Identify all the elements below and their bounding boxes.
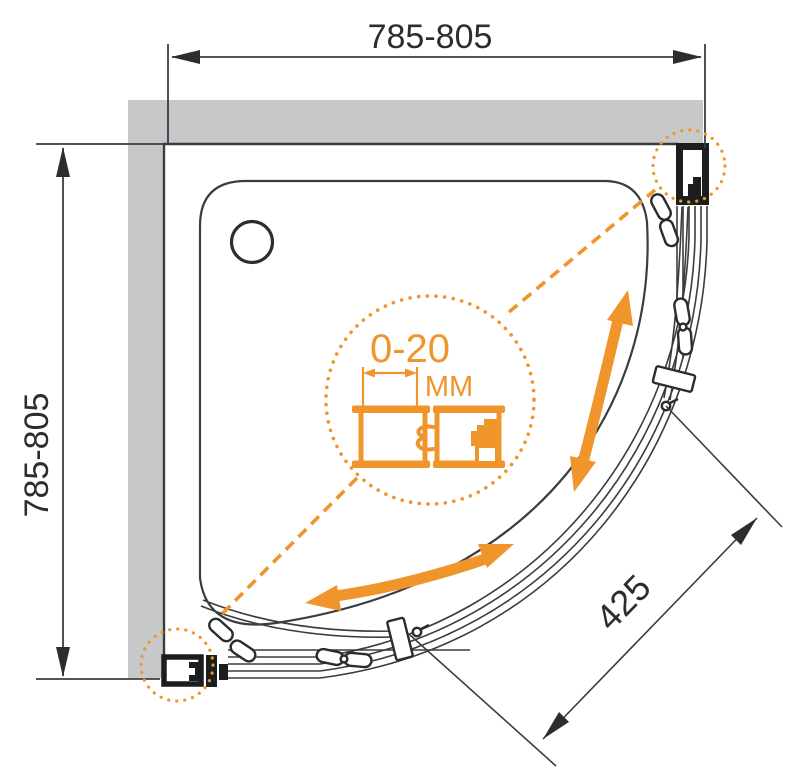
roller-axle bbox=[341, 656, 348, 663]
profile-flange bbox=[352, 406, 430, 414]
profile-bar bbox=[702, 143, 709, 205]
handle-bottom-door bbox=[387, 618, 413, 661]
shower-enclosure-technical-drawing: 785-805 785-805 425 0-20 MM bbox=[0, 0, 800, 783]
roller-pair-bottom bbox=[315, 648, 372, 668]
leader-line-top bbox=[666, 406, 782, 527]
roller-axle bbox=[680, 324, 687, 331]
arrow-down-icon bbox=[56, 647, 70, 677]
roller bbox=[673, 298, 690, 327]
entry-dimension-label: 425 bbox=[587, 566, 658, 638]
wall-profile-bottom-left bbox=[164, 655, 228, 687]
dimension-line bbox=[543, 518, 757, 739]
door-stopper-bottom bbox=[413, 628, 421, 636]
roller bbox=[228, 638, 258, 664]
adjustment-range-label: 0-20 bbox=[370, 327, 450, 371]
arrow-right-icon bbox=[673, 50, 702, 64]
shower-tray bbox=[200, 181, 648, 625]
arrow-left-icon bbox=[171, 50, 200, 64]
roller-pair-right bbox=[673, 298, 692, 355]
profile-bar bbox=[676, 143, 683, 205]
profile-bar bbox=[206, 655, 217, 687]
arrow-up-icon bbox=[56, 147, 70, 177]
arrow-head-down-icon bbox=[570, 456, 596, 492]
depth-dimension-label: 785-805 bbox=[18, 393, 56, 518]
top-wall bbox=[128, 100, 703, 143]
wall-profile-top-right bbox=[676, 143, 709, 205]
profile-clip bbox=[688, 177, 701, 196]
roller bbox=[649, 192, 673, 222]
roller bbox=[678, 327, 693, 355]
plan-view-diagram: 785-805 785-805 425 0-20 MM bbox=[0, 0, 800, 783]
profile-flange bbox=[433, 406, 505, 414]
width-dimension-label: 785-805 bbox=[368, 18, 493, 56]
leader-line-bottom bbox=[410, 635, 556, 766]
drain-icon bbox=[232, 222, 273, 263]
handle-top-door bbox=[653, 366, 696, 392]
profile-flange bbox=[352, 461, 430, 469]
profile-channel bbox=[477, 446, 497, 463]
left-wall bbox=[128, 100, 163, 678]
roller-pair-top-right bbox=[649, 192, 680, 248]
profile-bar bbox=[676, 143, 709, 150]
adjustment-unit-label: MM bbox=[425, 371, 473, 403]
profile-bar bbox=[219, 664, 228, 680]
